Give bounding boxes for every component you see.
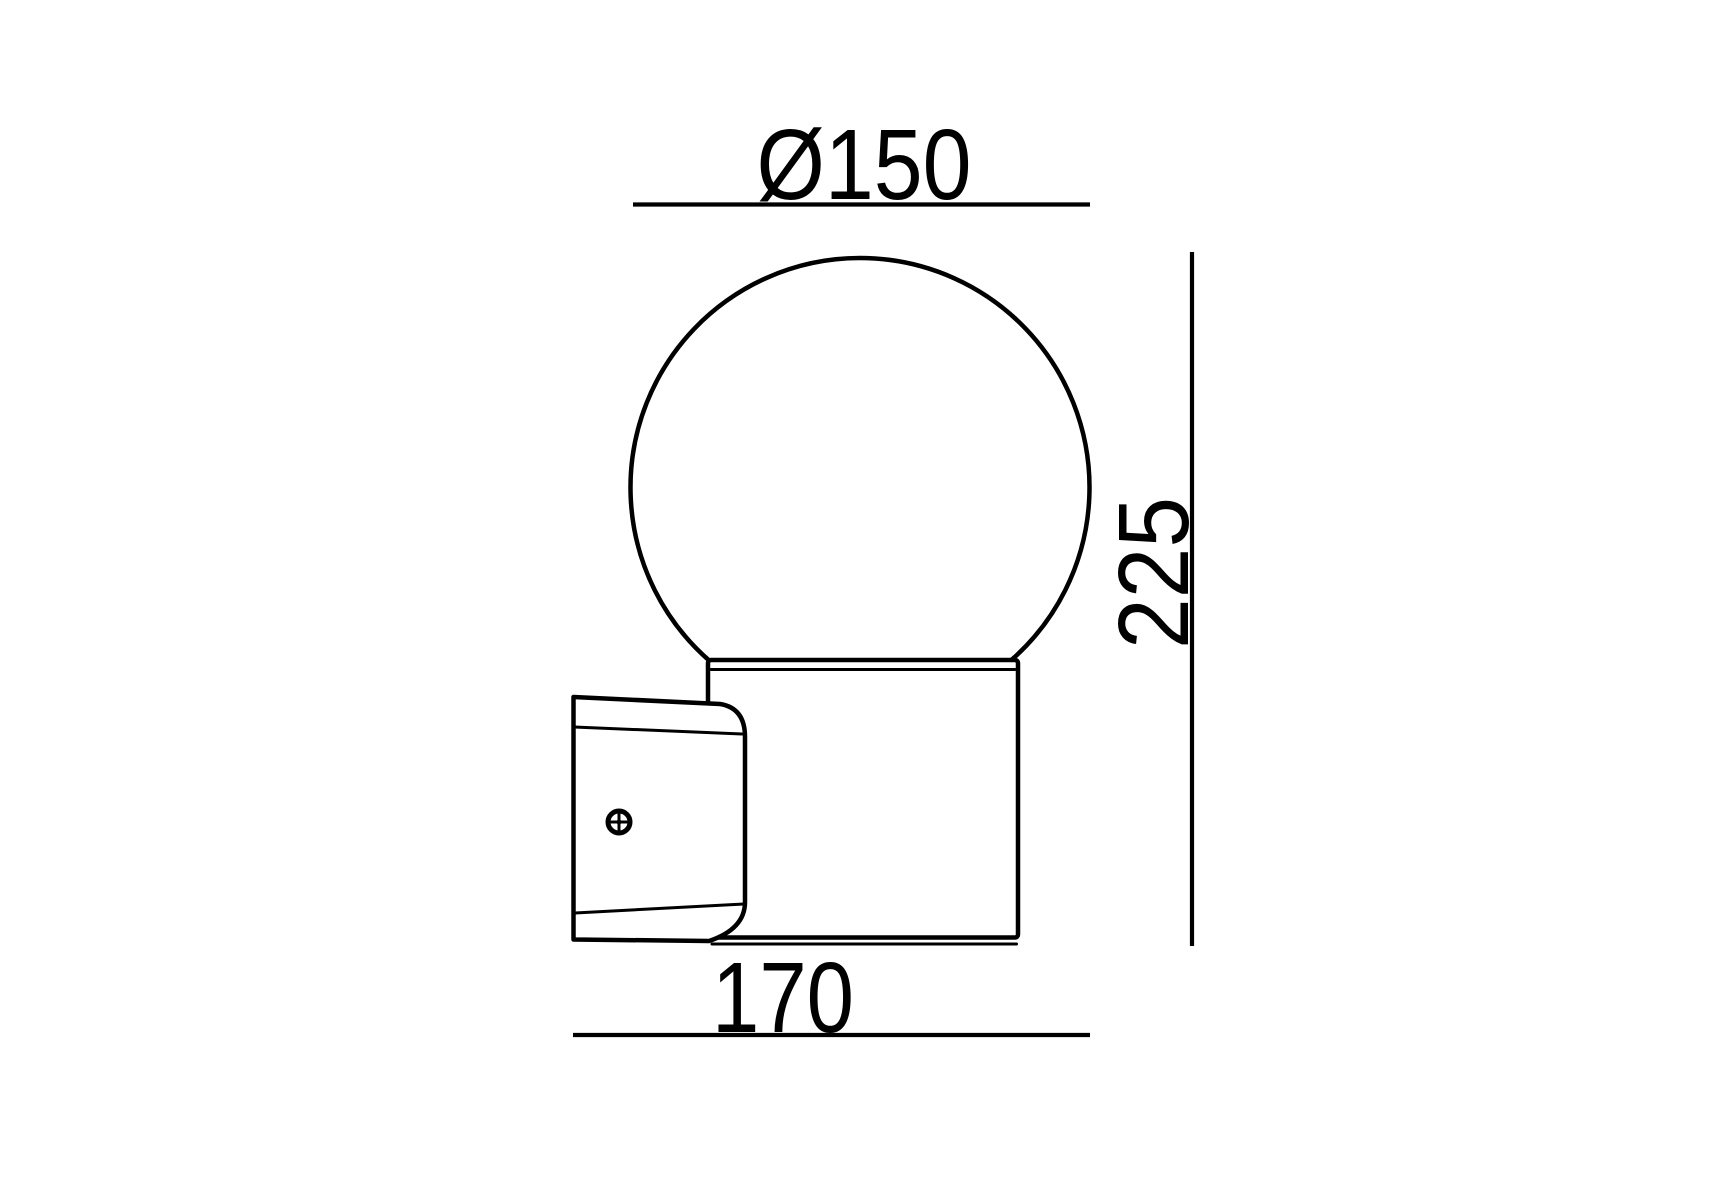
screw-center-dot	[617, 820, 622, 825]
technical-drawing: Ø150 225 170	[0, 0, 1713, 1199]
globe-outline	[631, 258, 1090, 660]
height-dimension-label: 225	[1098, 497, 1210, 649]
wall-lamp-dimension-drawing: Ø150 225 170	[0, 0, 1713, 1199]
depth-dimension-label: 170	[712, 942, 854, 1054]
base-cylinder-outline	[708, 660, 1018, 938]
diameter-dimension-label: Ø150	[757, 109, 972, 221]
screw-icon	[608, 811, 630, 833]
